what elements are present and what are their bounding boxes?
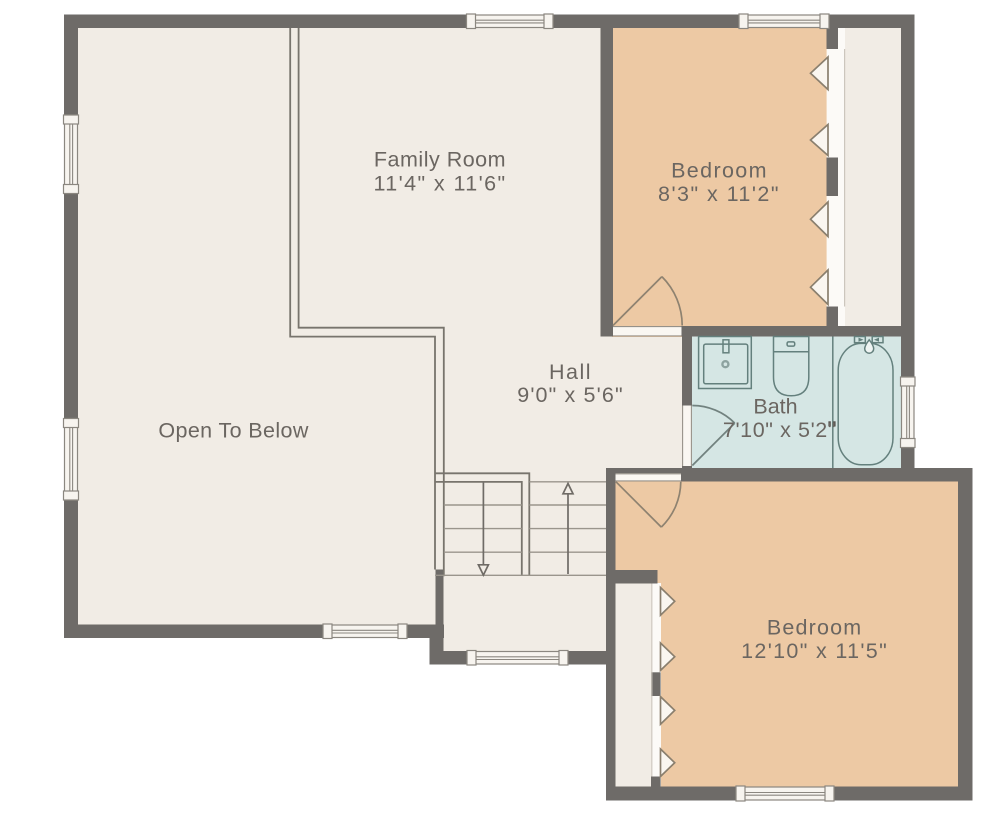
svg-text:Open To Below: Open To Below [158,419,308,443]
svg-text:Hall: Hall [549,360,592,384]
svg-text:Bedroom: Bedroom [767,616,862,640]
svg-text:Bath: Bath [753,395,797,419]
svg-text:7'10" x 5'2": 7'10" x 5'2" [723,418,836,442]
svg-text:8'3" x 11'2": 8'3" x 11'2" [658,182,780,206]
svg-text:Family Room: Family Room [374,148,506,172]
svg-text:Bedroom: Bedroom [671,159,768,183]
svg-text:12'10" x 11'5": 12'10" x 11'5" [741,639,888,663]
svg-text:11'4" x 11'6": 11'4" x 11'6" [373,172,506,196]
svg-text:9'0" x 5'6": 9'0" x 5'6" [517,383,624,407]
